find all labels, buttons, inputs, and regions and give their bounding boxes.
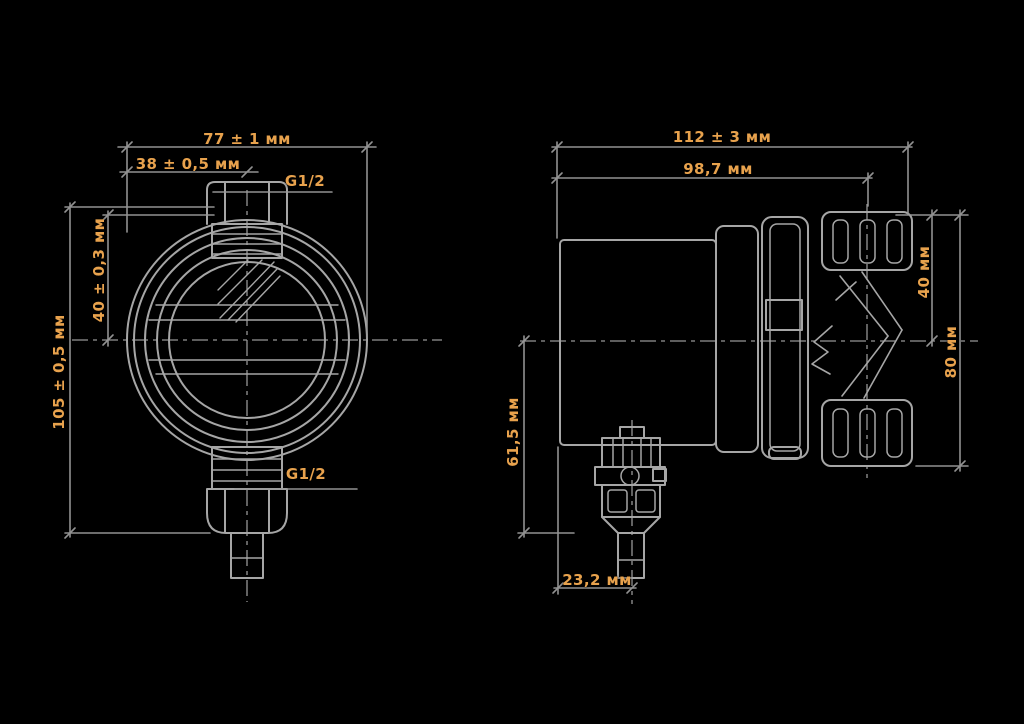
side-view-dimension-lines bbox=[518, 142, 968, 594]
dim-label-fitting-height: 80 мм bbox=[942, 326, 960, 379]
dim-label-depth-overall: 112 ± 3 мм bbox=[673, 128, 772, 146]
thread-label-bottom: G1/2 bbox=[286, 465, 326, 483]
dim-label-width-half: 38 ± 0,5 мм bbox=[136, 155, 241, 173]
dim-label-depth-body: 98,7 мм bbox=[683, 160, 753, 178]
case-body bbox=[560, 217, 808, 459]
dim-label-bottom-offset: 23,2 мм bbox=[562, 571, 632, 589]
drawing-linework bbox=[0, 0, 1024, 724]
side-view bbox=[518, 142, 978, 604]
front-view bbox=[65, 142, 442, 602]
dim-label-fitting-top: 40 мм bbox=[915, 246, 933, 299]
dim-label-bottom-drop: 61,5 мм bbox=[504, 397, 522, 467]
side-bottom-connector bbox=[595, 427, 666, 578]
dim-label-height-top: 40 ± 0,3 мм bbox=[90, 218, 108, 323]
dim-label-height-overall: 105 ± 0,5 мм bbox=[50, 314, 68, 429]
technical-drawing: 77 ± 1 мм 38 ± 0,5 мм G1/2 105 ± 0,5 мм … bbox=[0, 0, 1024, 724]
side-fitting-assembly bbox=[812, 212, 912, 466]
dim-label-width-overall: 77 ± 1 мм bbox=[203, 130, 291, 148]
thread-label-top: G1/2 bbox=[285, 172, 325, 190]
